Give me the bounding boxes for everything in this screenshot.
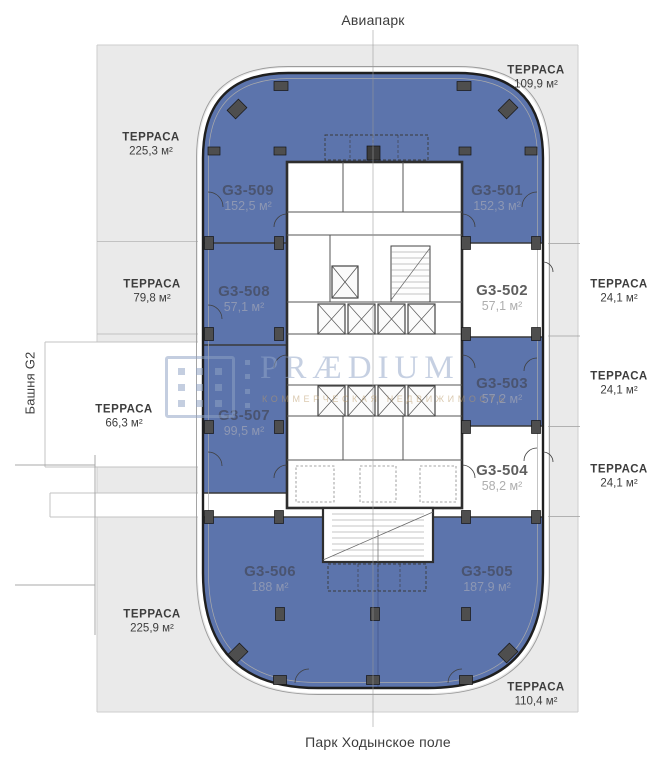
unit-label-g3-506[interactable]: G3-506 188 м² [244,563,296,595]
unit-label-g3-508[interactable]: G3-508 57,1 м² [218,283,270,315]
floor-plan-page: Авиапарк Парк Ходынское поле Башня G2 ТЕ… [0,0,664,768]
column [367,146,380,160]
terrace-label-left: ТЕРРАСА 79,8 м² [123,278,181,307]
stair-lower [323,508,433,562]
terrace-label-top-right: ТЕРРАСА 109,9 м² [507,64,565,93]
elevator-single [332,266,358,298]
unit-label-g3-503[interactable]: G3-503 57,2 м² [476,375,528,407]
unit-label-g3-505[interactable]: G3-505 187,9 м² [461,563,513,595]
terrace-label-right-upper: ТЕРРАСА 24,1 м² [590,278,648,307]
terrace-label-top-left: ТЕРРАСА 225,3 м² [122,131,180,160]
terrace-label-right-middle: ТЕРРАСА 24,1 м² [590,370,648,399]
floor-plan-svg [0,0,664,768]
surrounding-label-left: Башня G2 [23,352,38,415]
unit-label-g3-507[interactable]: G3-507 99,5 м² [218,407,270,439]
terrace-label-bottom-right: ТЕРРАСА 110,4 м² [507,681,565,710]
surrounding-label-top: Авиапарк [341,12,404,28]
terrace-label-left-lower: ТЕРРАСА 66,3 м² [95,403,153,432]
terrace-label-right-lower: ТЕРРАСА 24,1 м² [590,463,648,492]
stair-upper [391,246,430,302]
unit-label-g3-501[interactable]: G3-501 152,3 м² [471,182,523,214]
building-core [287,162,462,562]
terrace-label-bottom-left: ТЕРРАСА 225,9 м² [123,608,181,637]
adjacent-tower-outline [15,455,95,635]
unit-label-g3-509[interactable]: G3-509 152,5 м² [222,182,274,214]
unit-label-g3-504[interactable]: G3-504 58,2 м² [476,462,528,494]
surrounding-label-bottom: Парк Ходынское поле [305,734,451,750]
unit-label-g3-502[interactable]: G3-502 57,1 м² [476,282,528,314]
